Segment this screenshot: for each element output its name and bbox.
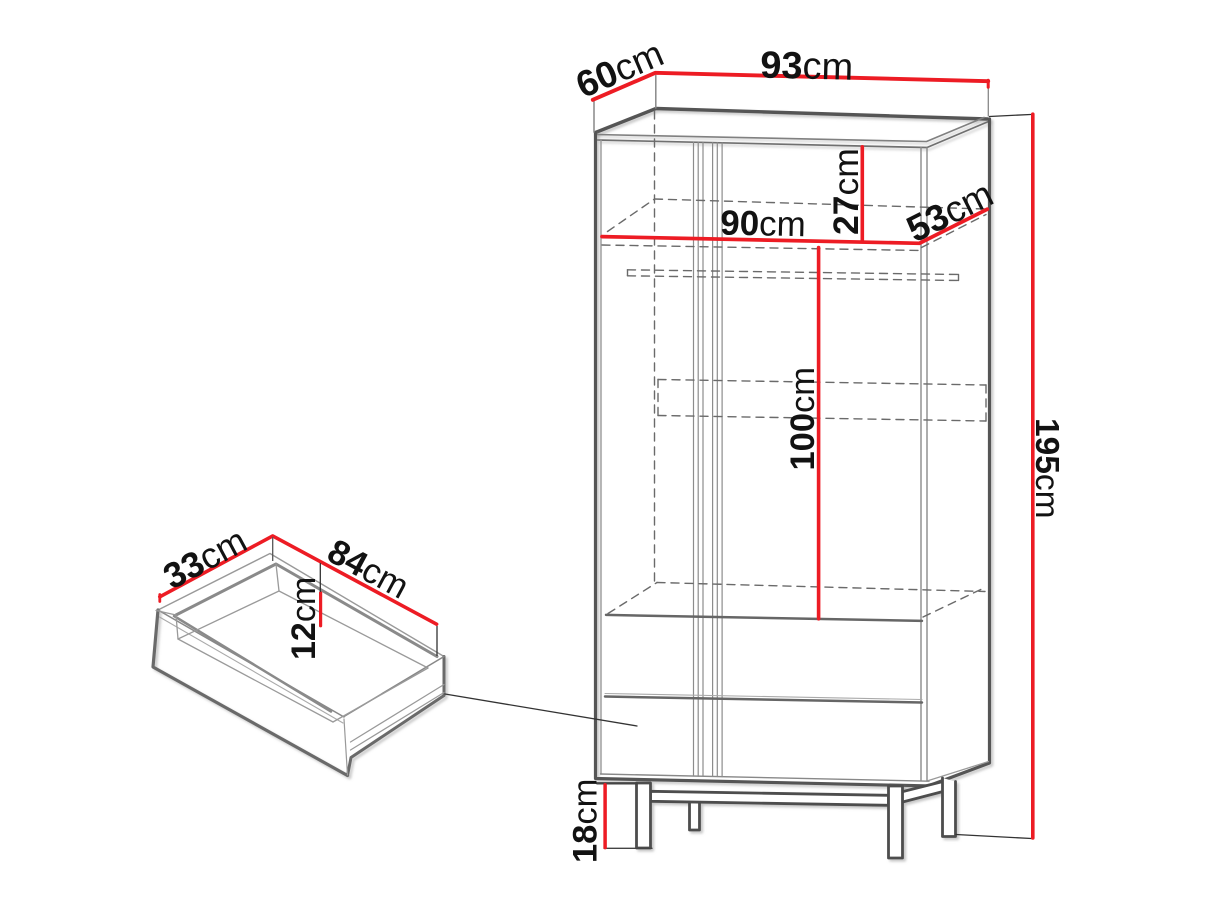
svg-text:18cm: 18cm <box>567 779 605 863</box>
svg-text:27cm: 27cm <box>826 148 866 235</box>
svg-text:100cm: 100cm <box>784 367 822 471</box>
svg-text:12cm: 12cm <box>285 577 323 660</box>
svg-text:93cm: 93cm <box>760 45 854 89</box>
svg-text:195cm: 195cm <box>1028 418 1065 519</box>
svg-text:90cm: 90cm <box>720 204 806 245</box>
